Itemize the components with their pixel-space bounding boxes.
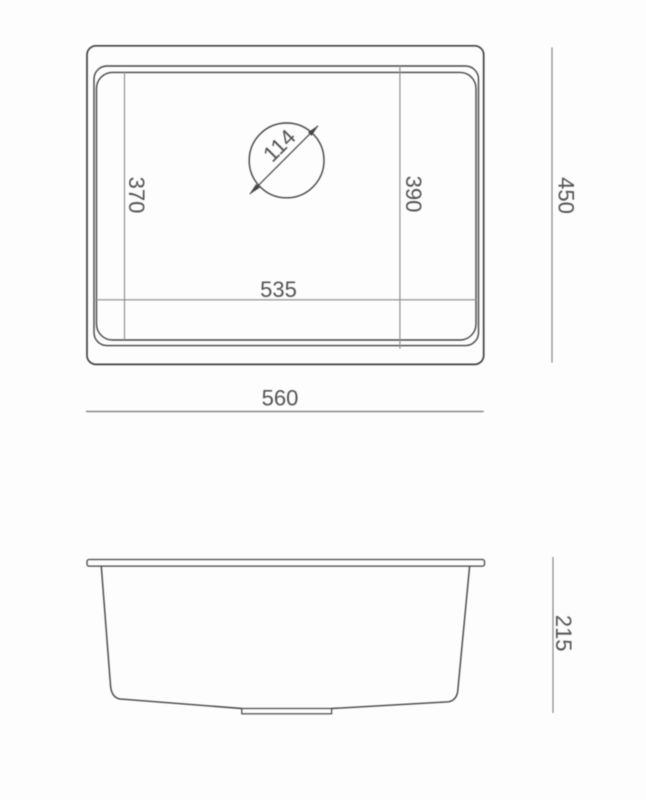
svg-text:450: 450 [554, 177, 579, 214]
svg-text:560: 560 [262, 386, 299, 411]
svg-text:215: 215 [551, 615, 576, 652]
svg-text:390: 390 [401, 176, 426, 213]
svg-text:535: 535 [260, 277, 297, 302]
svg-text:370: 370 [124, 177, 149, 214]
